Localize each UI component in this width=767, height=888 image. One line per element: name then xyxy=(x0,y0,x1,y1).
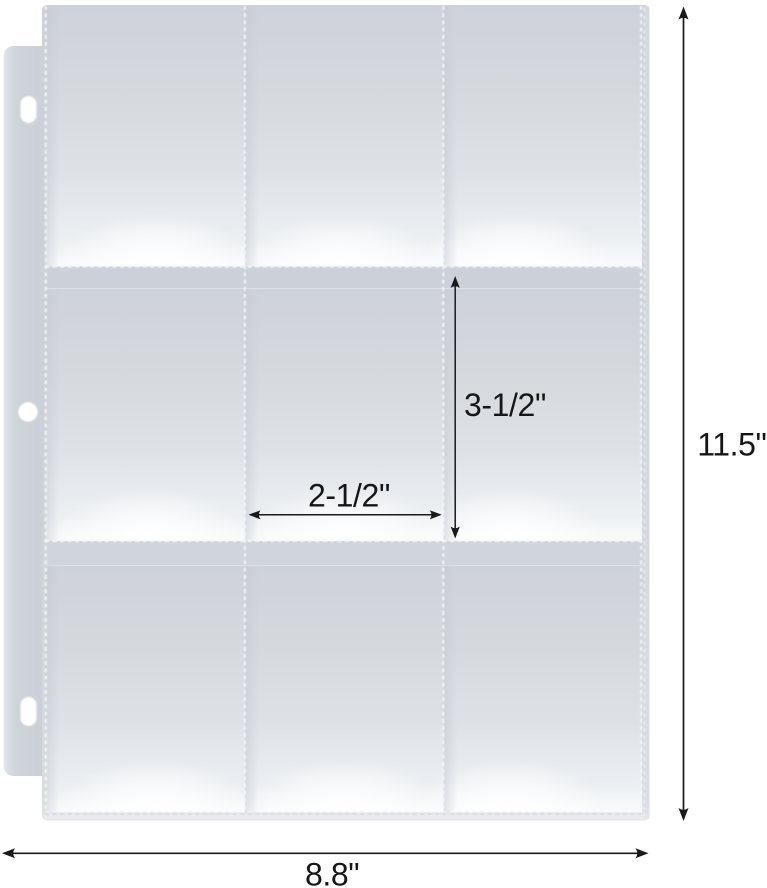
svg-text:11.5": 11.5" xyxy=(697,427,766,463)
svg-text:8.8": 8.8" xyxy=(305,857,359,888)
svg-text:2-1/2": 2-1/2" xyxy=(308,478,390,514)
svg-text:3-1/2": 3-1/2" xyxy=(464,387,546,423)
